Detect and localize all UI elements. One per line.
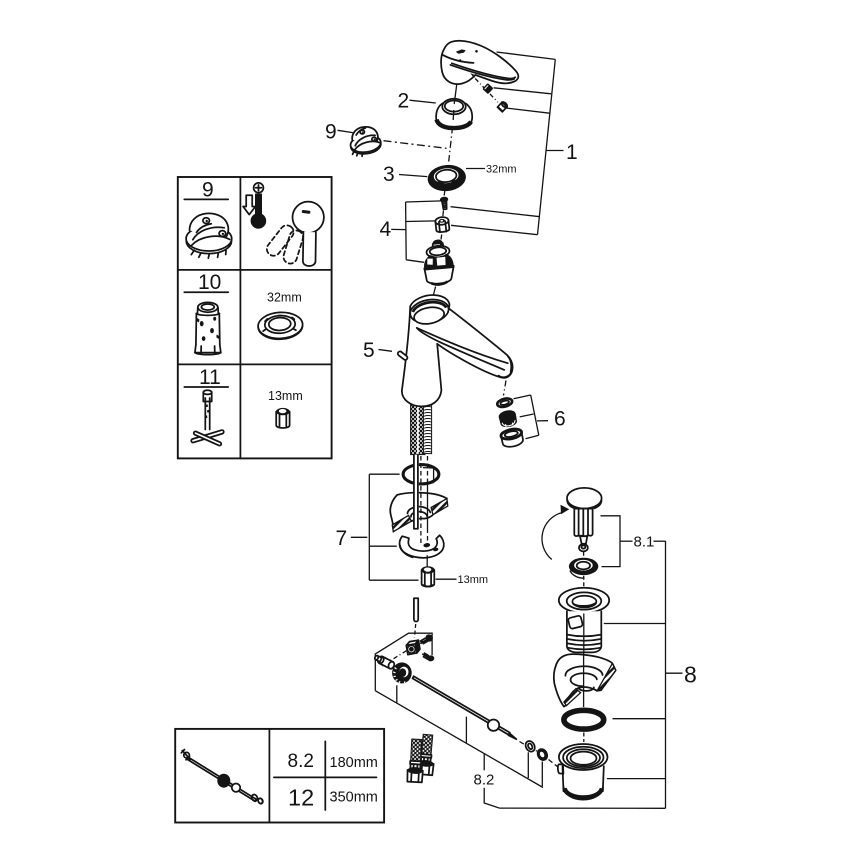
svg-text:350mm: 350mm — [330, 790, 378, 806]
svg-text:11: 11 — [199, 366, 221, 389]
svg-text:8: 8 — [684, 661, 697, 687]
svg-text:8.2: 8.2 — [288, 751, 314, 772]
svg-text:8.2: 8.2 — [474, 771, 495, 788]
svg-text:32mm: 32mm — [486, 164, 517, 176]
svg-text:6: 6 — [554, 408, 566, 431]
svg-text:8.1: 8.1 — [634, 533, 655, 550]
svg-text:10: 10 — [198, 271, 221, 294]
svg-text:9: 9 — [202, 179, 214, 202]
svg-text:13mm: 13mm — [458, 574, 489, 586]
svg-text:4: 4 — [380, 218, 392, 241]
svg-text:1: 1 — [566, 141, 578, 164]
svg-text:5: 5 — [363, 339, 375, 362]
svg-text:7: 7 — [336, 527, 348, 550]
svg-text:12: 12 — [288, 784, 314, 810]
svg-text:13mm: 13mm — [268, 389, 303, 403]
svg-text:32mm: 32mm — [267, 291, 302, 305]
svg-text:2: 2 — [398, 90, 410, 113]
svg-text:3: 3 — [383, 163, 395, 186]
svg-text:180mm: 180mm — [330, 755, 378, 771]
svg-text:9: 9 — [325, 121, 337, 144]
